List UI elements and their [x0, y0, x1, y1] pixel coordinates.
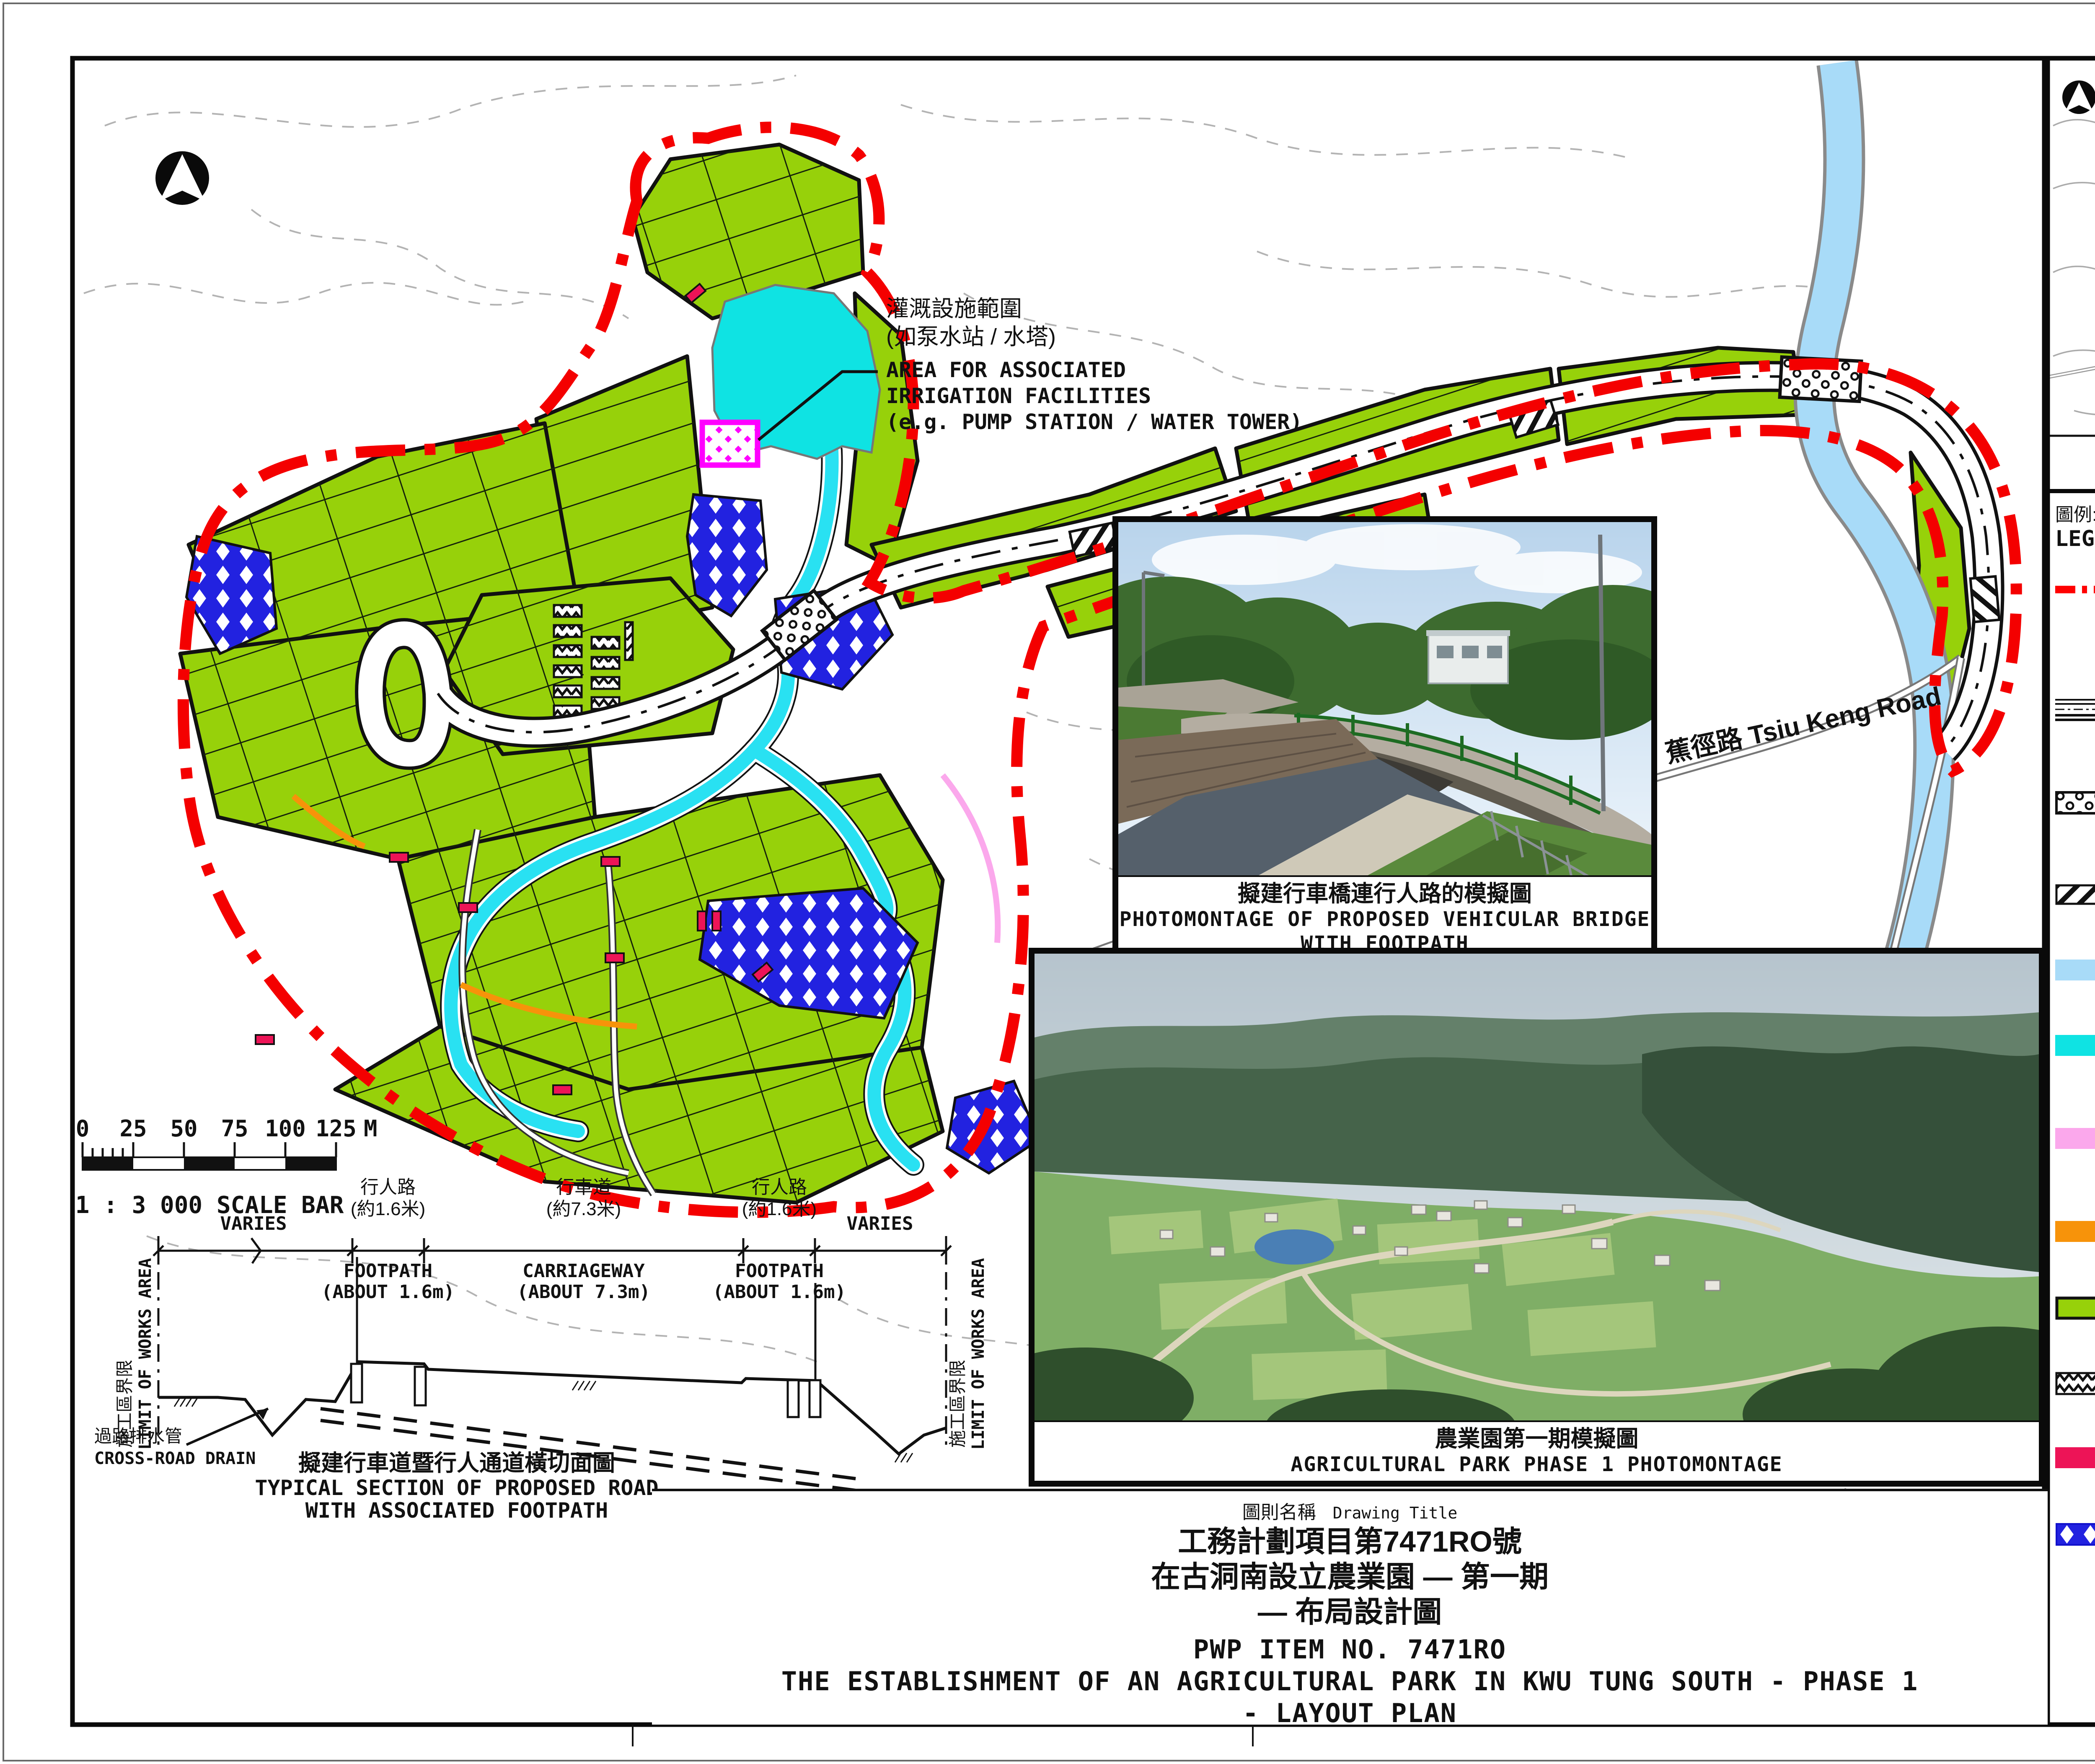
legend-swatch-farmland [2055, 1280, 2095, 1322]
svg-text:擬建行車道暨行人通道橫切面圖: 擬建行車道暨行人通道橫切面圖 [298, 1451, 615, 1476]
title-en-2: THE ESTABLISHMENT OF AN AGRICULTURAL PAR… [652, 1666, 2048, 1697]
legend-item-footpath: 擬建行人路 (1.5米闊) PROPOSED FOOTPATH (1.5m WI… [2055, 1204, 2095, 1254]
legend-item-bridge: 擬建行車橋連行人路 PROPOSED VEHICULAR BRIDGE WITH… [2055, 774, 2095, 841]
title-zh-3: — 布局設計圖 [652, 1594, 2048, 1630]
svg-text:行車道: 行車道 [556, 1177, 611, 1198]
legend-swatch-footpath [2055, 1204, 2095, 1244]
irrigation-facility-area [702, 422, 758, 465]
legend-header-zh: 圖例: [2055, 499, 2095, 526]
svg-text:125: 125 [316, 1115, 357, 1142]
svg-text:行人路: 行人路 [360, 1177, 416, 1198]
svg-text:25: 25 [119, 1115, 147, 1142]
svg-text:(ABOUT 1.6m): (ABOUT 1.6m) [713, 1281, 846, 1303]
svg-text:灌溉設施範圍: 灌溉設施範圍 [886, 296, 1022, 321]
legend-swatch-pond [2055, 1018, 2095, 1058]
agpark-photo-image [1035, 954, 2039, 1423]
legend-swatch-bridge [2055, 774, 2095, 817]
north-arrow-icon [155, 151, 209, 205]
svg-text:VARIES: VARIES [220, 1213, 287, 1234]
title-zh-2: 在古洞南設立農業園 — 第一期 [652, 1559, 2048, 1594]
key-plan: 長瀝 Cheung Lek 蓮塘尾 Lin Tong Mei 蕉徑 Tsiu K… [2048, 58, 2095, 492]
title-zh-1: 工務計劃項目第7471RO號 [652, 1524, 2048, 1559]
drawing-sheet: { "page": { "enclosure_label": "附件1 ENCL… [0, 0, 2095, 1764]
svg-text:VARIES: VARIES [847, 1213, 913, 1234]
svg-text:M: M [364, 1115, 378, 1142]
svg-text:WITH ASSOCIATED FOOTPATH: WITH ASSOCIATED FOOTPATH [305, 1498, 608, 1523]
svg-text:CROSS-ROAD DRAIN: CROSS-ROAD DRAIN [94, 1449, 256, 1468]
bridge-photo-image [1118, 522, 1651, 883]
svg-text:(ABOUT 7.3m): (ABOUT 7.3m) [517, 1281, 650, 1303]
svg-text:0: 0 [76, 1115, 90, 1142]
svg-text:(約1.6米): (約1.6米) [742, 1199, 817, 1219]
svg-text:(ABOUT 1.6m): (ABOUT 1.6m) [321, 1281, 455, 1303]
key-plan-north-arrow-icon [2062, 80, 2095, 114]
legend-item-farmland: 擬建農田 PROPOSED FARMLAND [2055, 1280, 2095, 1329]
svg-text:1 : 3 000 SCALE BAR: 1 : 3 000 SCALE BAR [75, 1192, 344, 1219]
legend-swatch-river [2055, 943, 2095, 983]
svg-text:CARRIAGEWAY: CARRIAGEWAY [522, 1260, 645, 1282]
svg-text:(e.g. PUMP STATION / WATER TOW: (e.g. PUMP STATION / WATER TOWER) [886, 410, 1302, 434]
bridge-photomontage: 擬建行車橋連行人路的模擬圖 PHOTOMONTAGE OF PROPOSED V… [1112, 516, 1657, 966]
title-en-3: - LAYOUT PLAN [652, 1697, 2048, 1729]
svg-text:AREA FOR ASSOCIATED: AREA FOR ASSOCIATED [886, 358, 1126, 382]
legend-item-pond: 擬建灌溉用蓄水池 PROPOSED IRRIGATION STORAGE PON… [2055, 1018, 2095, 1085]
svg-text:IRRIGATION FACILITIES: IRRIGATION FACILITIES [886, 384, 1151, 408]
legend-item-storage: 擬建農耕貯物設施 PROPOSED STORAGE [2055, 1430, 2095, 1480]
legend-swatch-track [2055, 1111, 2095, 1151]
legend-item-river: 現有河道 / 河流 EXISTING RIVER / STREAM COURSE [2055, 943, 2095, 992]
svg-text:(約1.6米): (約1.6米) [351, 1199, 425, 1219]
svg-text:(如泵水站 / 水塔): (如泵水站 / 水塔) [886, 324, 1056, 349]
svg-text:行人路: 行人路 [752, 1177, 807, 1198]
legend-item-road: 擬建行車道暨行人通道 PROPOSED ROAD WITH ASSOCIATED… [2055, 681, 2095, 748]
legend-swatch-culvert [2055, 867, 2095, 907]
agpark-photo-caption: 農業園第一期模擬圖 AGRICULTURAL PARK PHASE 1 PHOT… [1035, 1420, 2039, 1481]
legend-item-track: 現有行人通道 / 小徑 (擴闊至1.6米) EXISTING FOOTPATH … [2055, 1111, 2095, 1178]
svg-text:過路排水管: 過路排水管 [94, 1426, 182, 1446]
legend-item-tree-zone: 擬建樹木保存地帶 PROPOSED TREE PRESERVATION ZONE [2055, 1506, 2095, 1555]
svg-text:TYPICAL SECTION OF PROPOSED RO: TYPICAL SECTION OF PROPOSED ROAD [255, 1476, 658, 1500]
drawing-title-label: 圖則名稱Drawing Title [652, 1497, 2048, 1524]
svg-text:FOOTPATH: FOOTPATH [735, 1260, 824, 1282]
legend-swatch-lodging [2055, 1355, 2095, 1397]
legend-swatch-boundary [2055, 566, 2095, 598]
svg-text:施工區界限: 施工區界限 [948, 1360, 967, 1448]
svg-text:75: 75 [221, 1115, 248, 1142]
svg-text:LIMIT OF WORKS AREA: LIMIT OF WORKS AREA [969, 1258, 988, 1450]
legend-item-boundary: 農業園第一期擬議範圍 BOUNDARY OF PROPOSED AGRICULT… [2055, 566, 2095, 655]
title-en-1: PWP ITEM NO. 7471RO [652, 1634, 2048, 1666]
background-building [1426, 630, 1510, 683]
title-block: 圖則名稱Drawing Title 工務計劃項目第7471RO號 在古洞南設立農… [652, 1489, 2048, 1725]
scale-bar: 0 25 50 75 100 125 M 1 : 3 000 SCALE BAR [75, 1115, 378, 1219]
svg-text:50: 50 [170, 1115, 197, 1142]
bridge-photo-caption: 擬建行車橋連行人路的模擬圖 PHOTOMONTAGE OF PROPOSED V… [1118, 875, 1651, 960]
agpark-photomontage: 農業園第一期模擬圖 AGRICULTURAL PARK PHASE 1 PHOT… [1029, 948, 2045, 1487]
svg-text:(約7.3米): (約7.3米) [546, 1199, 621, 1219]
legend-swatch-tree-zone [2055, 1506, 2095, 1548]
legend: 圖例: LEGEND: 農業園第一期擬議範圍 BOUNDARY OF PROPO… [2055, 499, 2095, 1581]
pond [1254, 1229, 1334, 1265]
legend-header-en: LEGEND: [2055, 526, 2095, 551]
legend-item-lodging: 擬建留宿設施 PROPOSED LODGING [2055, 1355, 2095, 1404]
legend-swatch-storage [2055, 1430, 2095, 1470]
svg-text:100: 100 [265, 1115, 306, 1142]
svg-text:LIMIT OF WORKS AREA: LIMIT OF WORKS AREA [136, 1258, 155, 1450]
legend-swatch-road [2055, 681, 2095, 724]
legend-item-culvert: 擬建暗渠 PROPOSED CULVERT [2055, 867, 2095, 917]
